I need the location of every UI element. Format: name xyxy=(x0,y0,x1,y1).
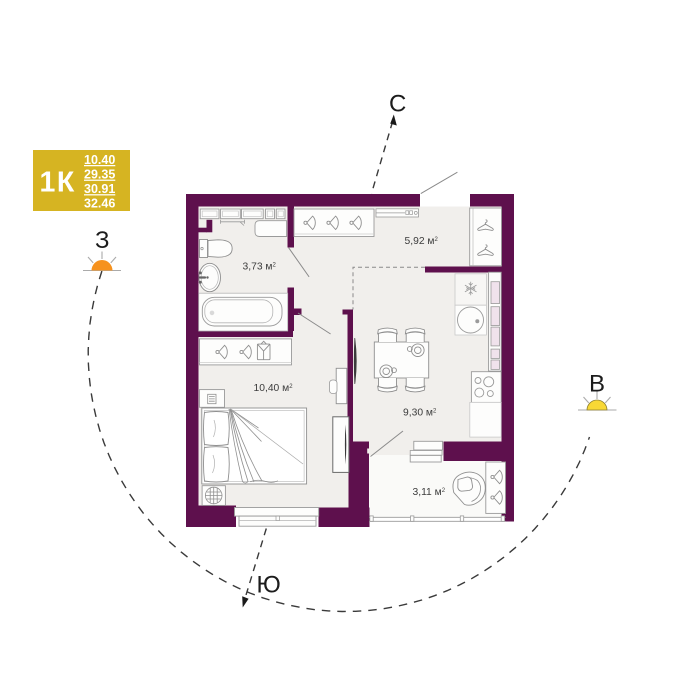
svg-text:3,11 м2: 3,11 м2 xyxy=(413,487,446,498)
svg-text:Ю: Ю xyxy=(257,572,281,599)
svg-text:С: С xyxy=(389,91,406,118)
svg-text:5,92 м2: 5,92 м2 xyxy=(405,236,439,247)
svg-text:29.35: 29.35 xyxy=(84,168,115,182)
svg-text:1К: 1К xyxy=(40,167,76,199)
svg-text:10,40 м2: 10,40 м2 xyxy=(254,383,294,394)
svg-text:30.91: 30.91 xyxy=(84,182,115,196)
svg-text:10.40: 10.40 xyxy=(84,153,115,167)
svg-text:3,73 м2: 3,73 м2 xyxy=(243,262,277,273)
svg-text:9,30 м2: 9,30 м2 xyxy=(403,408,437,419)
svg-text:32.46: 32.46 xyxy=(84,196,115,210)
svg-text:З: З xyxy=(95,227,110,254)
